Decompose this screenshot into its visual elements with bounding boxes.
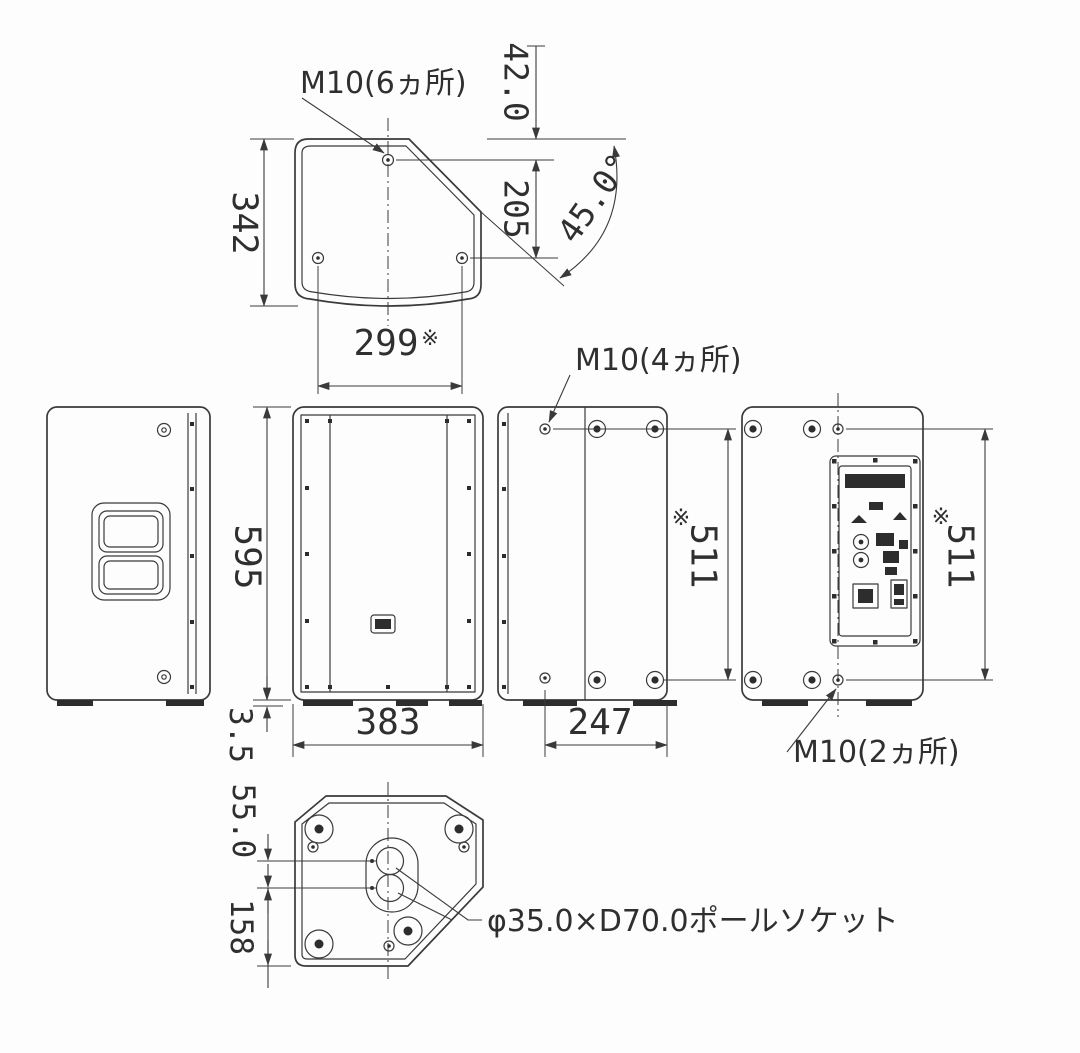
side-screws — [158, 424, 171, 684]
grille-edge-clips — [190, 422, 194, 689]
amp-vent — [845, 474, 905, 488]
m10-6-callout: M10(6ヵ所) — [300, 66, 467, 153]
m10-6-label: M10(6ヵ所) — [300, 66, 467, 101]
foot — [633, 700, 677, 706]
dim-label-247: 247 — [567, 702, 632, 743]
right-side-view — [498, 407, 677, 706]
dim-205: 205 — [470, 160, 558, 258]
foot — [303, 700, 353, 706]
dim-label-299: 299 — [353, 323, 418, 364]
jbl-logo-badge — [371, 615, 395, 633]
front-view — [293, 407, 483, 706]
dim-595: 595 — [227, 407, 292, 700]
rear-corner-screws — [745, 421, 821, 689]
pole-socket — [366, 838, 418, 912]
rubber-feet — [305, 815, 473, 958]
dim-label-3-5: 3.5 — [222, 707, 258, 763]
foot — [449, 700, 482, 706]
pole-socket-callout: φ35.0×D70.0ポールソケット — [396, 868, 899, 939]
handle — [92, 503, 170, 600]
dim-label-383: 383 — [355, 702, 420, 743]
m10-top-holes — [313, 155, 468, 264]
dim-42: 42.0 — [396, 42, 626, 160]
foot — [866, 700, 912, 706]
speaker-dimension-diagram: 342 299 ※ 42.0 205 45.0° M10(6ヵ所) — [0, 0, 1080, 1053]
ref-mark-299: ※ — [421, 326, 439, 350]
grille-edge-clips-right — [502, 422, 506, 689]
m10-4-callout: M10(4ヵ所) — [549, 343, 742, 422]
foot — [166, 700, 204, 706]
rear-view — [742, 393, 923, 717]
bottom-view — [295, 782, 483, 980]
dim-158: 158 — [223, 864, 291, 988]
dim-label-511-rear: 511 — [940, 523, 981, 588]
dim-511-side: ※ 511 — [553, 429, 736, 680]
amp-controls — [851, 502, 908, 608]
dim-label-45deg: 45.0° — [550, 146, 639, 250]
foot — [762, 700, 808, 706]
m10-2-label: M10(2ヵ所) — [793, 735, 960, 770]
m10-4-label: M10(4ヵ所) — [575, 343, 742, 378]
dim-342: 342 — [224, 139, 298, 306]
left-side-view — [47, 407, 210, 706]
dim-label-55: 55.0 — [225, 784, 261, 859]
dimension-drawing-page: 342 299 ※ 42.0 205 45.0° M10(6ヵ所) — [0, 0, 1080, 1053]
top-view — [295, 118, 481, 326]
pole-socket-label: φ35.0×D70.0ポールソケット — [487, 904, 899, 939]
dim-383: 383 — [293, 702, 483, 757]
amp-panel — [830, 456, 920, 646]
dim-3-5: 3.5 — [222, 676, 283, 763]
dim-label-158: 158 — [223, 899, 259, 955]
dim-label-595: 595 — [227, 524, 268, 589]
dim-label-205: 205 — [497, 179, 536, 239]
dim-299: 299 ※ — [318, 266, 462, 394]
foot — [57, 700, 93, 706]
m10-side-holes — [540, 421, 664, 689]
dim-label-42: 42.0 — [497, 42, 536, 121]
dim-label-342: 342 — [224, 191, 264, 254]
dim-label-511-side: 511 — [683, 523, 724, 588]
